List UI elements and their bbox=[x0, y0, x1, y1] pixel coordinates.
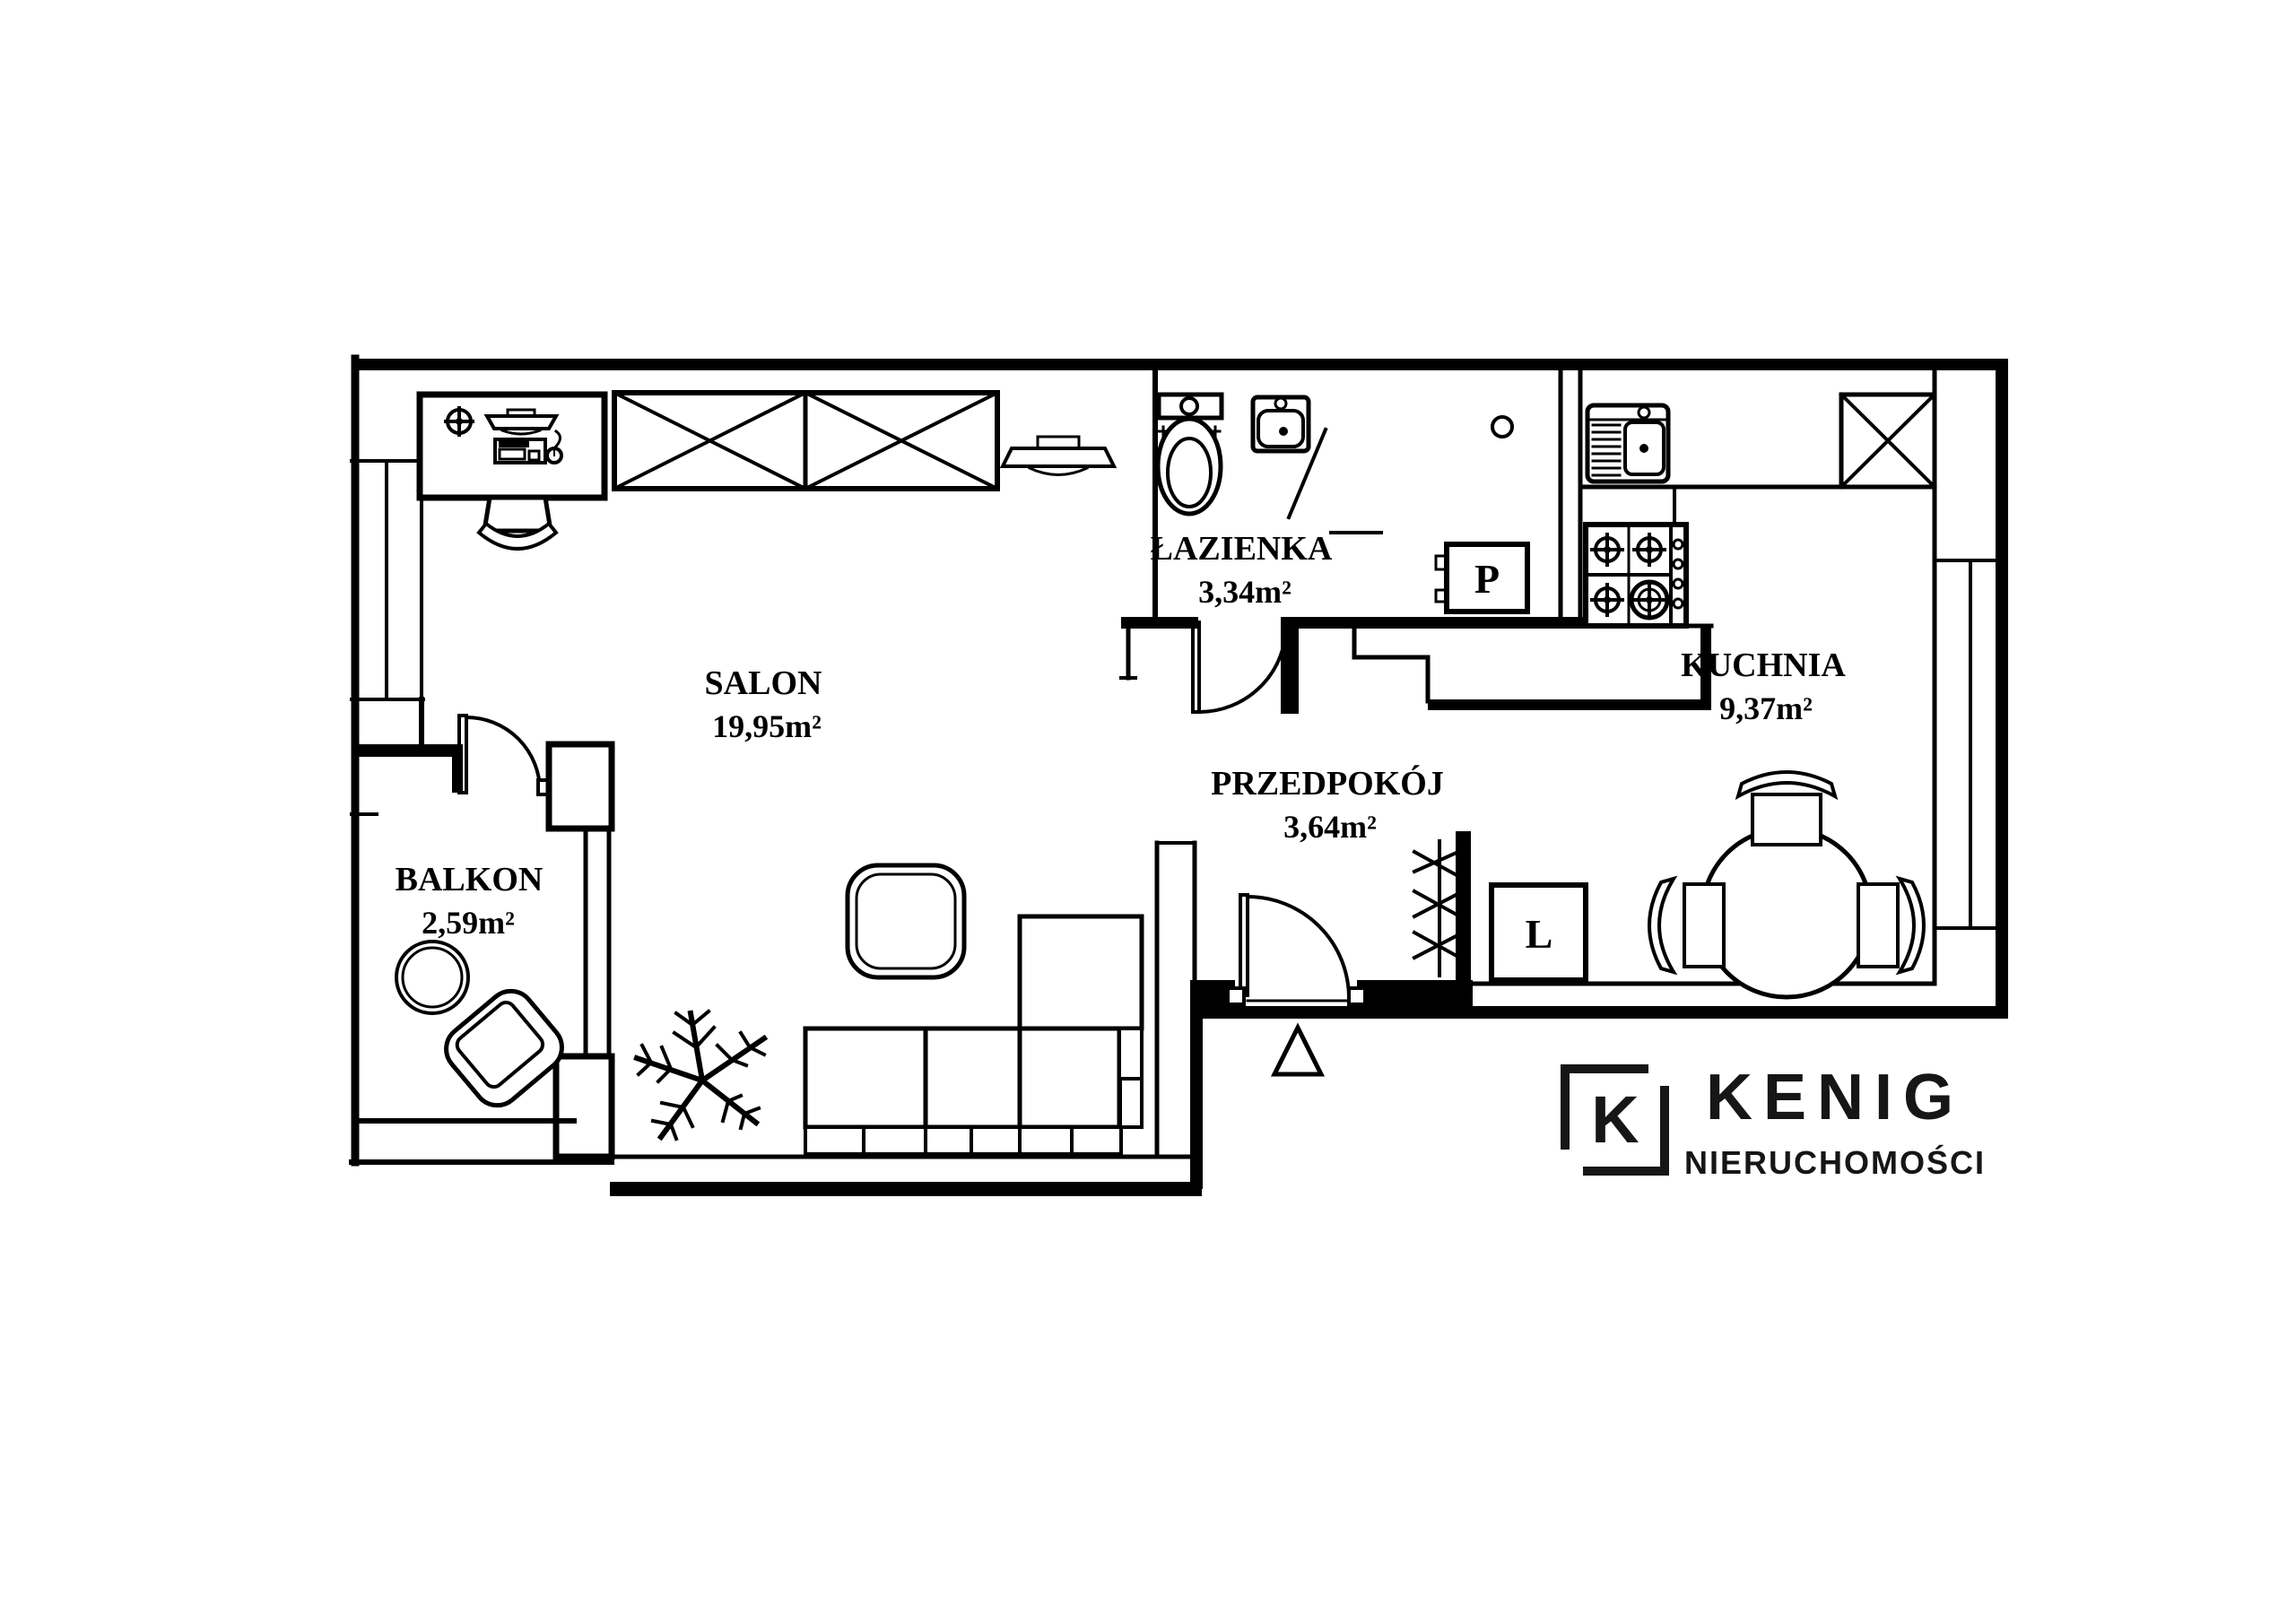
kenig-logo-monogram: K bbox=[1591, 1082, 1639, 1157]
washing-machine-label: P bbox=[1474, 556, 1500, 602]
salon-balcony-window bbox=[583, 829, 612, 1056]
wall-salon-bottom-outer bbox=[610, 1182, 1202, 1196]
label-salon-name: SALON bbox=[705, 664, 822, 702]
desk-chair bbox=[479, 498, 556, 549]
label-lazienka-area: 3,34m² bbox=[1198, 574, 1291, 610]
label-kuchnia-area: 9,37m² bbox=[1719, 690, 1813, 726]
plant-icon bbox=[637, 1011, 764, 1139]
label-kuchnia-name: KUCHNIA bbox=[1681, 647, 1846, 684]
floor-plan-drawing: P bbox=[0, 0, 2296, 1623]
wall-kitchen-lower-corner-h bbox=[1428, 699, 1711, 710]
label-lazienka-name: ŁAZIENKA bbox=[1151, 530, 1333, 568]
wall-salon-right-lower bbox=[1190, 1013, 1203, 1189]
fridge-cabinet-x bbox=[1841, 395, 1935, 487]
dining-chair-top bbox=[1738, 772, 1835, 845]
label-przedpokoj-area: 3,64m² bbox=[1283, 809, 1377, 845]
floor-plan-page: P bbox=[0, 0, 2296, 1623]
wall-bathroom-bottom-left bbox=[1121, 617, 1198, 629]
fridge-label: L bbox=[1526, 911, 1553, 957]
fridge-box: L bbox=[1492, 885, 1586, 980]
kitchen-right-window bbox=[1935, 368, 1996, 984]
wall-top bbox=[352, 359, 2006, 370]
dining-chair-right bbox=[1858, 879, 1924, 972]
stove-icon bbox=[1586, 525, 1686, 626]
toilet-icon bbox=[1158, 395, 1222, 514]
entrance-door bbox=[1228, 895, 1365, 1004]
desk bbox=[420, 395, 604, 498]
tv-icon bbox=[1003, 437, 1114, 475]
dining-chair-left bbox=[1649, 879, 1724, 972]
burner-large bbox=[1631, 582, 1667, 618]
balcony-door bbox=[459, 716, 552, 794]
wall-duct-kitchen bbox=[1354, 626, 1711, 701]
wall-block-balcony-bottom bbox=[556, 1056, 612, 1157]
wall-bottom-outer bbox=[1190, 1006, 2008, 1019]
coffee-table bbox=[848, 865, 964, 977]
wall-right-outer bbox=[1996, 359, 2008, 1019]
label-balkon-name: BALKON bbox=[396, 861, 544, 898]
wall-stub-bathroom bbox=[1281, 617, 1299, 714]
kenig-logo: K KENIG NIERUCHOMOŚCI bbox=[1565, 1062, 1986, 1181]
kenig-logo-brand: KENIG bbox=[1706, 1062, 1964, 1133]
wall-pier-balcony bbox=[549, 744, 612, 829]
wall-bathroom-kitchen bbox=[1561, 368, 1580, 626]
wall-bathroom-bottom-right bbox=[1297, 617, 1585, 629]
entrance-right-jamb bbox=[1357, 980, 1473, 1019]
bathroom-door bbox=[1193, 622, 1286, 712]
entrance-marker-triangle bbox=[1274, 1028, 1321, 1074]
label-balkon-area: 2,59m² bbox=[422, 905, 515, 941]
dining-table bbox=[1702, 829, 1871, 997]
wall-balcony-door-side bbox=[352, 744, 461, 757]
kenig-logo-subtitle: NIERUCHOMOŚCI bbox=[1684, 1143, 1986, 1181]
washing-machine: P bbox=[1436, 544, 1527, 612]
kitchen-sink-icon bbox=[1587, 405, 1668, 482]
label-salon-area: 19,95m² bbox=[712, 708, 822, 744]
balcony-table bbox=[396, 942, 468, 1013]
balcony-furniture bbox=[396, 942, 571, 1115]
bathroom-dot bbox=[1492, 417, 1512, 437]
wardrobe bbox=[614, 393, 997, 489]
label-przedpokoj-name: PRZEDPOKÓJ bbox=[1211, 765, 1444, 803]
salon-left-window bbox=[352, 461, 423, 745]
crosshair-symbol bbox=[446, 408, 473, 435]
washbasin-icon bbox=[1253, 397, 1309, 451]
kitchen-counter bbox=[1585, 487, 1841, 525]
